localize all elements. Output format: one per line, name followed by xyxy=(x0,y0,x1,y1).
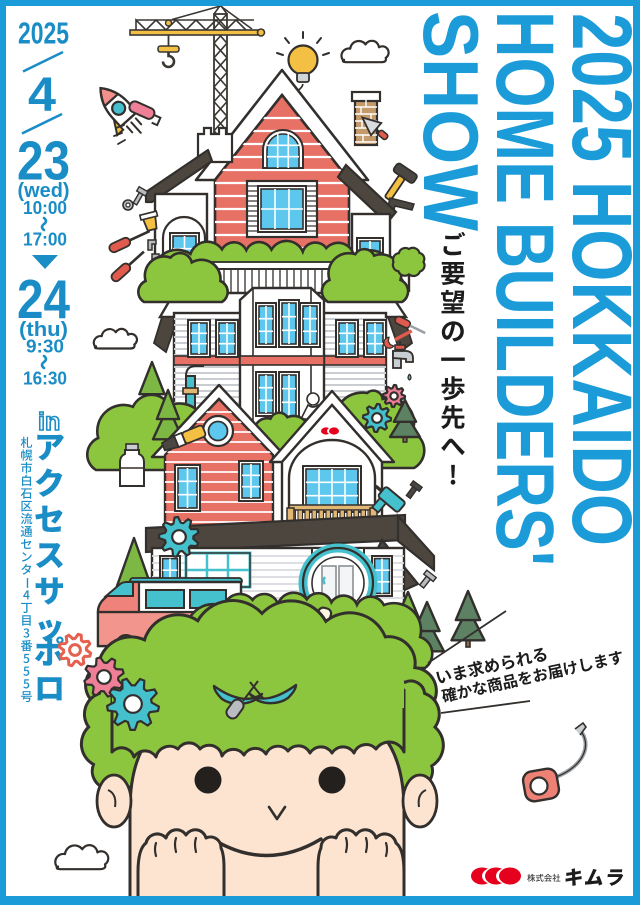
svg-text:16:30: 16:30 xyxy=(23,369,67,389)
svg-text:4: 4 xyxy=(28,69,56,122)
svg-text:SHOW: SHOW xyxy=(407,11,495,231)
svg-text:2025: 2025 xyxy=(18,16,69,51)
svg-text:in: in xyxy=(38,408,60,436)
svg-text:10:00: 10:00 xyxy=(23,198,67,218)
svg-text:17:00: 17:00 xyxy=(23,230,67,250)
svg-text:9:30: 9:30 xyxy=(26,337,64,357)
